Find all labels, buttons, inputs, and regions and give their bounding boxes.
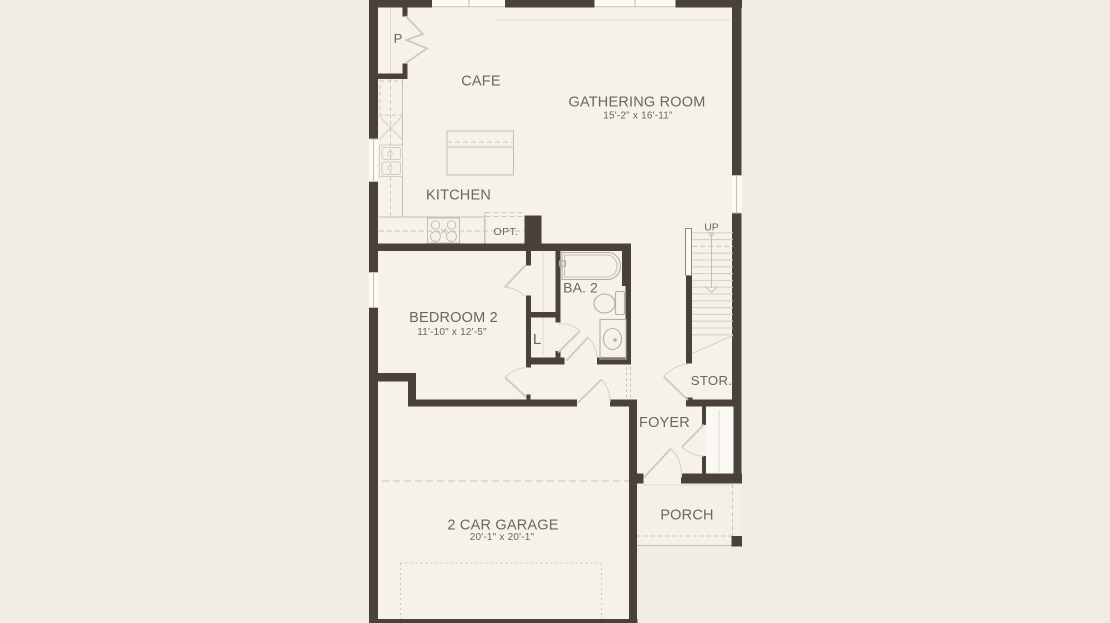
svg-text:FOYER: FOYER bbox=[639, 415, 690, 431]
svg-text:BA. 2: BA. 2 bbox=[563, 280, 598, 296]
svg-text:PORCH: PORCH bbox=[660, 508, 713, 524]
svg-text:P: P bbox=[394, 31, 403, 46]
svg-text:KITCHEN: KITCHEN bbox=[426, 188, 491, 204]
svg-text:BEDROOM 2: BEDROOM 2 bbox=[409, 310, 498, 326]
svg-text:11'-10" x 12'-5": 11'-10" x 12'-5" bbox=[417, 327, 487, 338]
svg-text:OPT.: OPT. bbox=[494, 226, 519, 238]
svg-text:20'-1" x 20'-1": 20'-1" x 20'-1" bbox=[470, 532, 535, 543]
svg-text:STOR.: STOR. bbox=[691, 373, 733, 388]
svg-text:UP: UP bbox=[704, 222, 719, 234]
svg-text:CAFE: CAFE bbox=[461, 74, 501, 90]
svg-text:L: L bbox=[533, 331, 541, 348]
svg-text:GATHERING ROOM: GATHERING ROOM bbox=[568, 95, 705, 111]
svg-text:15'-2" x 16'-11": 15'-2" x 16'-11" bbox=[603, 111, 673, 122]
